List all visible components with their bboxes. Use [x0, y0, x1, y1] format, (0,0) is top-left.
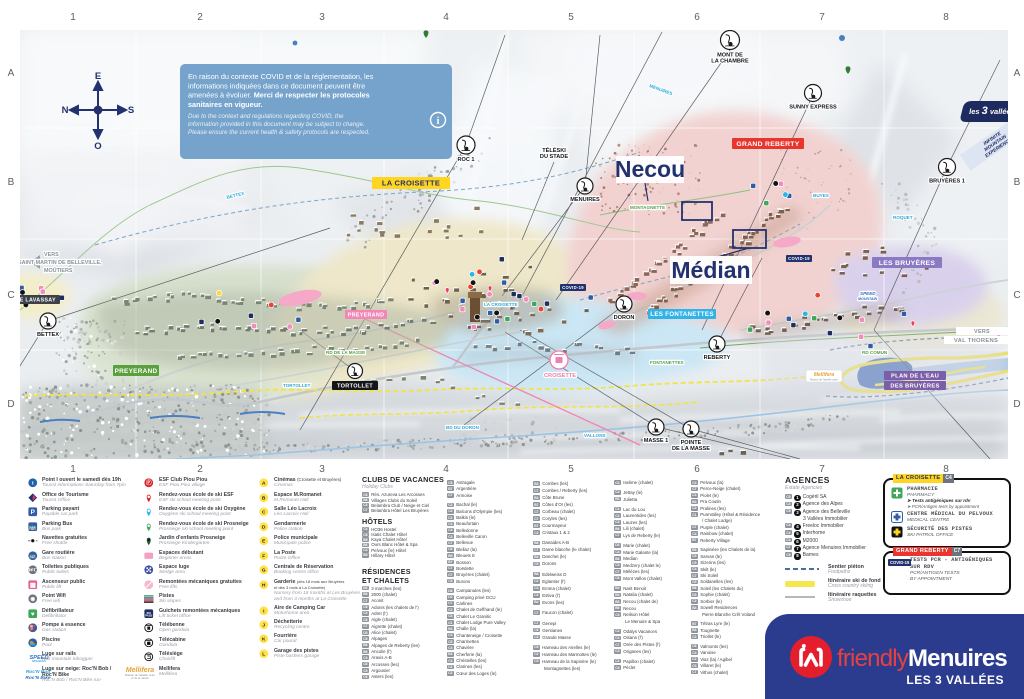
- svg-text:SAINT MARTIN DE BELLEVILLE,: SAINT MARTIN DE BELLEVILLE,: [18, 260, 102, 266]
- svg-text:L: L: [262, 651, 265, 657]
- svg-text:BUYES: BUYES: [813, 193, 829, 198]
- svg-text:BETTEX: BETTEX: [37, 332, 59, 338]
- svg-text:Please ensure the current heal: Please ensure the current health & safet…: [188, 129, 370, 136]
- svg-text:4: 4: [443, 12, 449, 23]
- svg-text:B: B: [262, 495, 266, 501]
- svg-text:🚌: 🚌: [29, 523, 37, 530]
- svg-text:FONTANETTES: FONTANETTES: [650, 360, 684, 365]
- svg-text:DE LA MASSE: DE LA MASSE: [672, 446, 710, 452]
- svg-text:2: 2: [197, 12, 203, 23]
- svg-text:VALLONS: VALLONS: [584, 433, 606, 438]
- svg-text:3: 3: [319, 464, 325, 475]
- svg-text:8: 8: [943, 12, 949, 23]
- svg-text:informations indiquées dans ce: informations indiquées dans ce document …: [188, 81, 365, 90]
- svg-text:LE LAVASSAY: LE LAVASSAY: [16, 297, 56, 303]
- svg-text:C: C: [7, 290, 14, 301]
- svg-text:VERS: VERS: [44, 252, 59, 258]
- svg-text:D: D: [1013, 399, 1020, 410]
- svg-text:PREYERAND: PREYERAND: [348, 312, 385, 318]
- svg-text:MOUNTAIN: MOUNTAIN: [858, 297, 878, 301]
- svg-text:MOÛTIERS: MOÛTIERS: [44, 267, 73, 274]
- svg-text:LA CHAMBRE: LA CHAMBRE: [711, 59, 749, 65]
- svg-text:1: 1: [70, 464, 76, 475]
- svg-text:LA CROISETTE: LA CROISETTE: [484, 302, 518, 307]
- svg-text:A: A: [262, 480, 266, 486]
- svg-text:LES BRUYÈRES: LES BRUYÈRES: [879, 258, 936, 267]
- svg-text:MASSE 1: MASSE 1: [644, 438, 669, 444]
- svg-text:J: J: [262, 622, 265, 628]
- svg-text:Mellifera: Mellifera: [814, 372, 835, 378]
- svg-text:K: K: [262, 636, 266, 642]
- svg-text:RD COMUN: RD COMUN: [862, 350, 888, 355]
- svg-text:D: D: [262, 524, 266, 530]
- svg-text:B: B: [8, 177, 15, 188]
- svg-text:P: P: [31, 509, 35, 516]
- svg-text:▦: ▦: [30, 581, 36, 588]
- svg-text:6: 6: [694, 464, 700, 475]
- svg-text:🏊: 🏊: [29, 640, 36, 646]
- svg-text:7: 7: [819, 464, 825, 475]
- svg-text:BRUYÈRES 1: BRUYÈRES 1: [929, 177, 965, 185]
- svg-text:DES BRUYÈRES: DES BRUYÈRES: [890, 382, 939, 390]
- svg-text:2: 2: [197, 464, 203, 475]
- svg-text:PASS: PASS: [145, 613, 152, 617]
- svg-text:DU STADE: DU STADE: [540, 154, 568, 160]
- svg-text:A: A: [1014, 68, 1021, 79]
- svg-text:CROISETTE: CROISETTE: [544, 373, 576, 379]
- svg-text:1: 1: [70, 12, 76, 23]
- svg-text:amenées à évoluer. Merci de re: amenées à évoluer. Merci de respecter le…: [188, 91, 370, 100]
- svg-text:les 3 vallées: les 3 vallées: [969, 105, 1015, 117]
- svg-text:COVID-19: COVID-19: [562, 285, 584, 290]
- svg-text:sanitaires en vigueur.: sanitaires en vigueur.: [188, 100, 263, 109]
- svg-text:🚌: 🚌: [29, 553, 36, 559]
- svg-text:S: S: [128, 105, 134, 116]
- svg-text:RD DE LA MASSE: RD DE LA MASSE: [326, 350, 365, 355]
- svg-text:PLAN DE L'EAU: PLAN DE L'EAU: [891, 374, 939, 380]
- svg-text:Médian: Médian: [671, 257, 750, 283]
- svg-text:TORTOLLET: TORTOLLET: [283, 383, 311, 388]
- svg-text:A: A: [8, 68, 15, 79]
- svg-text:LES FONTANETTES: LES FONTANETTES: [650, 311, 714, 318]
- svg-text:DORON: DORON: [614, 315, 635, 321]
- svg-text:REBERTY: REBERTY: [704, 355, 731, 361]
- svg-text:5: 5: [568, 12, 574, 23]
- svg-text:♥: ♥: [31, 610, 35, 617]
- svg-text:ROQUET: ROQUET: [893, 215, 913, 220]
- svg-text:MENUIRES: MENUIRES: [570, 197, 600, 203]
- svg-text:Maison de l'abeille noire: Maison de l'abeille noire: [810, 378, 838, 382]
- svg-text:LA CROISETTE: LA CROISETTE: [382, 179, 440, 188]
- svg-text:En raison du contexte COVID et: En raison du contexte COVID et de la rég…: [188, 72, 374, 81]
- svg-text:i: i: [437, 116, 440, 127]
- svg-text:N: N: [62, 105, 69, 116]
- svg-text:information provided in this d: information provided in this document ma…: [188, 121, 365, 128]
- svg-text:WC: WC: [28, 568, 38, 574]
- svg-text:F: F: [262, 553, 265, 559]
- svg-text:C: C: [1013, 290, 1020, 301]
- svg-text:MONTAGNETTE: MONTAGNETTE: [630, 205, 665, 210]
- svg-text:BD DU DORON: BD DU DORON: [446, 425, 480, 430]
- svg-text:SPEED: SPEED: [860, 291, 876, 296]
- svg-text:VERS: VERS: [974, 329, 990, 335]
- svg-text:C: C: [262, 509, 266, 515]
- svg-text:PREYERAND: PREYERAND: [115, 368, 158, 375]
- svg-text:Necou: Necou: [615, 156, 685, 182]
- svg-text:VAL THORENS: VAL THORENS: [954, 338, 998, 344]
- svg-text:H: H: [262, 582, 266, 588]
- svg-text:D: D: [7, 399, 14, 410]
- svg-text:G: G: [262, 567, 266, 573]
- svg-text:O: O: [94, 141, 101, 152]
- svg-text:GRAND REBERTY: GRAND REBERTY: [736, 141, 799, 148]
- svg-text:3: 3: [319, 12, 325, 23]
- svg-text:I: I: [263, 608, 264, 614]
- svg-text:ROC 1: ROC 1: [457, 157, 474, 163]
- svg-text:TORTOLLET: TORTOLLET: [337, 384, 373, 390]
- svg-text:B: B: [1014, 177, 1021, 188]
- svg-text:TÉLÉSKI: TÉLÉSKI: [542, 146, 566, 154]
- svg-text:E: E: [95, 71, 101, 82]
- svg-text:COVID-19: COVID-19: [788, 256, 810, 261]
- svg-text:7: 7: [819, 12, 825, 23]
- svg-text:E: E: [262, 538, 265, 544]
- svg-text:5: 5: [568, 464, 574, 475]
- svg-text:Due to the context and regulat: Due to the context and regulations regar…: [188, 113, 344, 120]
- svg-text:SUNNY EXPRESS: SUNNY EXPRESS: [789, 105, 837, 111]
- svg-text:6: 6: [694, 12, 700, 23]
